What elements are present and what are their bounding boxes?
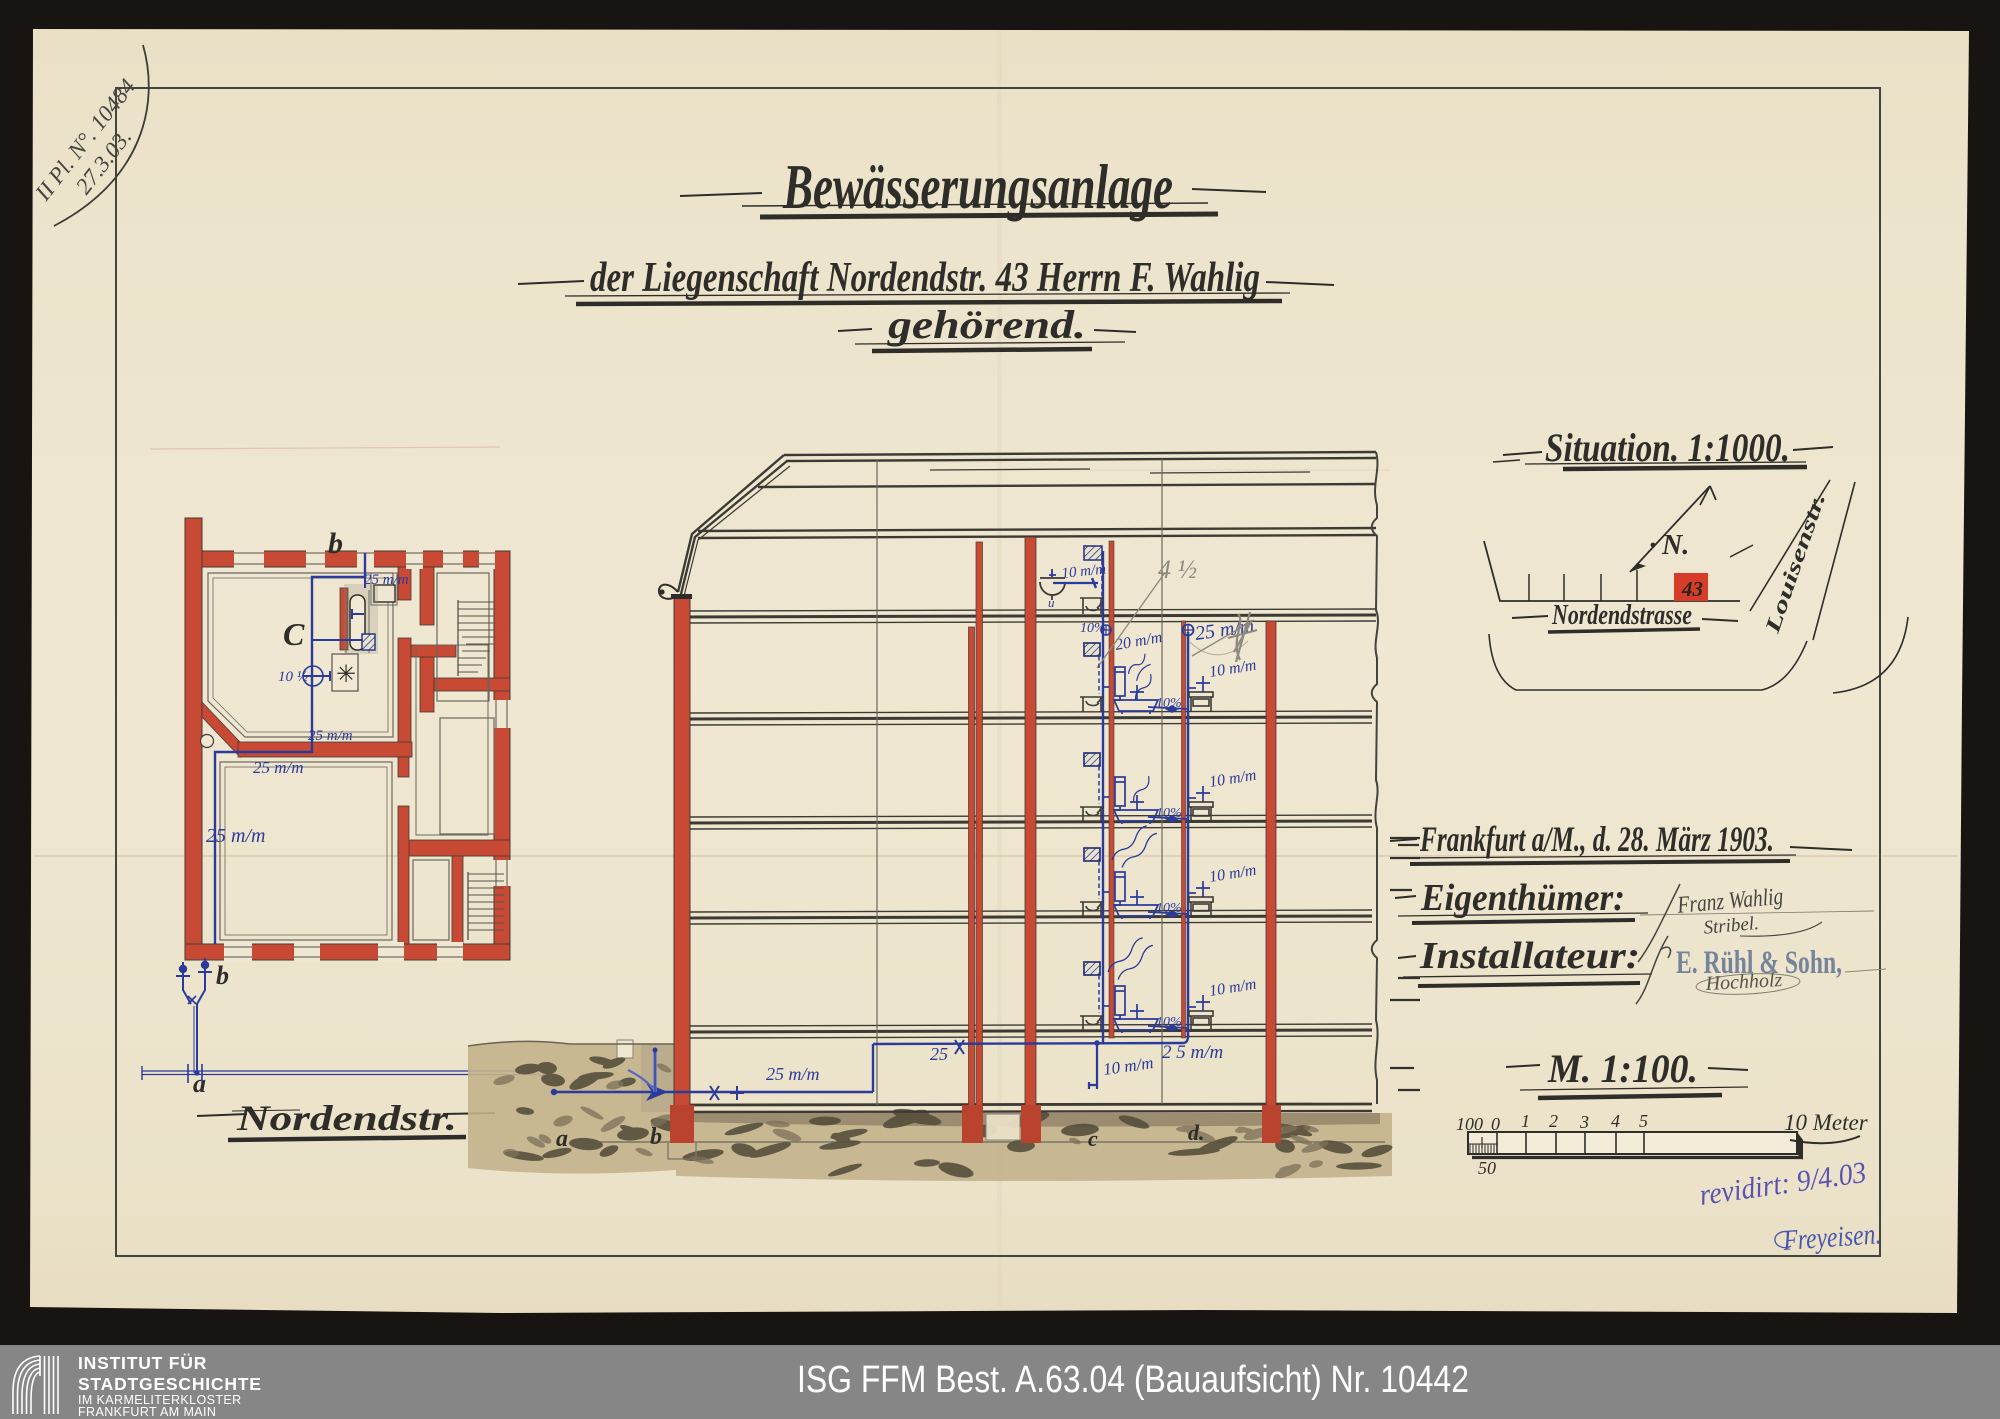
- svg-text:25 m/m: 25 m/m: [253, 758, 304, 777]
- svg-text:10 ½: 10 ½: [278, 669, 308, 685]
- svg-text:100: 100: [1456, 1114, 1483, 1134]
- svg-text:4 ½: 4 ½: [1158, 555, 1197, 584]
- svg-text:4: 4: [1611, 1111, 1620, 1131]
- svg-text:25 m/m: 25 m/m: [364, 572, 409, 588]
- svg-text:50: 50: [1478, 1158, 1496, 1178]
- svg-text:25: 25: [930, 1044, 948, 1064]
- svg-text:ISG FFM Best. A.63.04 (Bauaufs: ISG FFM Best. A.63.04 (Bauaufsicht) Nr. …: [797, 1359, 1469, 1401]
- svg-text:M. 1:100.: M. 1:100.: [1547, 1046, 1698, 1091]
- svg-text:INSTITUT FÜR: INSTITUT FÜR: [78, 1353, 207, 1373]
- svg-text:25 m/m: 25 m/m: [308, 728, 353, 744]
- svg-text:10%: 10%: [1156, 696, 1182, 711]
- svg-text:3: 3: [1579, 1112, 1589, 1132]
- svg-text:d.: d.: [1188, 1120, 1205, 1145]
- svg-text:✳: ✳: [336, 662, 356, 688]
- svg-text:2: 2: [1549, 1111, 1558, 1131]
- svg-text:0: 0: [1491, 1114, 1500, 1134]
- svg-text:1: 1: [1521, 1111, 1530, 1131]
- svg-text:b: b: [216, 961, 229, 990]
- svg-text:10%: 10%: [1080, 621, 1106, 636]
- svg-text:Bewässerungsanlage: Bewässerungsanlage: [782, 151, 1173, 222]
- svg-text:2 5 m/m: 2 5 m/m: [1162, 1042, 1223, 1063]
- svg-text:5: 5: [1639, 1111, 1648, 1131]
- svg-text:Hochholz: Hochholz: [1704, 969, 1783, 995]
- svg-text:Eigenthümer:: Eigenthümer:: [1420, 877, 1625, 919]
- svg-text:c: c: [1088, 1126, 1098, 1151]
- svg-text:25 m/m: 25 m/m: [206, 825, 265, 847]
- svg-text:gehörend.: gehörend.: [887, 302, 1086, 347]
- svg-text:N.: N.: [1661, 530, 1689, 561]
- svg-text:43: 43: [1681, 577, 1703, 601]
- svg-text:FRANKFURT AM MAIN: FRANKFURT AM MAIN: [78, 1405, 216, 1419]
- svg-text:10 Meter: 10 Meter: [1784, 1110, 1869, 1135]
- svg-text:a: a: [556, 1126, 568, 1152]
- svg-text:u: u: [1048, 595, 1055, 610]
- svg-text:Nordendstr.: Nordendstr.: [236, 1098, 457, 1138]
- svg-text:C: C: [283, 616, 305, 652]
- svg-text:Installateur:: Installateur:: [1419, 935, 1640, 977]
- svg-text:b: b: [650, 1124, 662, 1150]
- svg-text:Nordendstrasse: Nordendstrasse: [1551, 599, 1692, 631]
- svg-text:STADTGESCHICHTE: STADTGESCHICHTE: [78, 1374, 262, 1394]
- svg-text:25 m/m: 25 m/m: [766, 1064, 820, 1084]
- svg-text:b: b: [328, 527, 343, 560]
- svg-text:Frankfurt a/M., d. 28. März 19: Frankfurt a/M., d. 28. März 1903.: [1419, 819, 1774, 859]
